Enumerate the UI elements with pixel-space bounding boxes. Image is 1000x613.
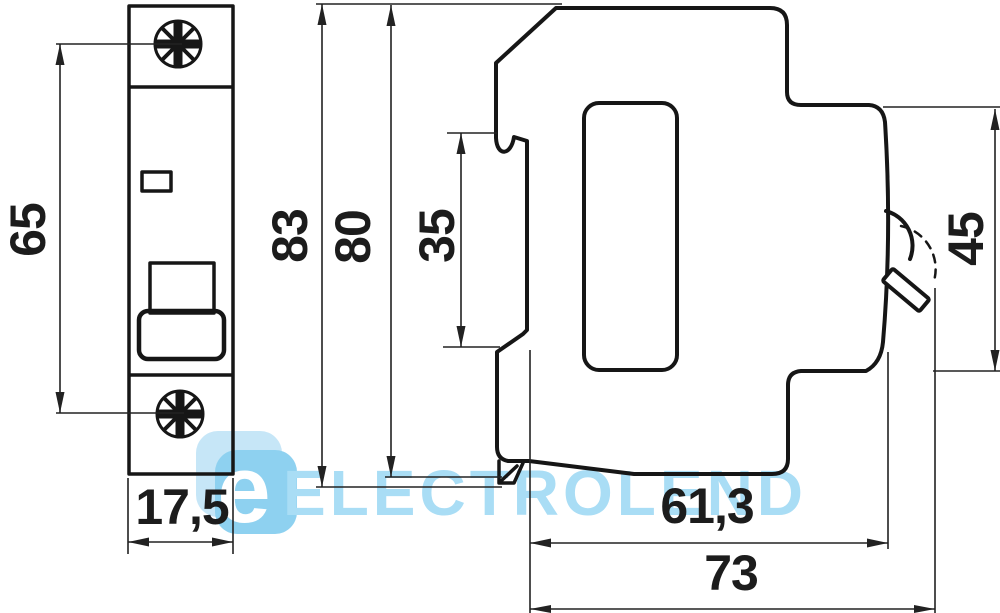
screenshot-root: e ELECTROLEND — [0, 0, 1000, 613]
din-clip-foot — [499, 461, 523, 483]
dim-label-overall-height: 83 — [265, 209, 315, 263]
toggle-lever-side — [882, 268, 929, 311]
dim-label-body-height: 80 — [328, 210, 378, 264]
side-body-outline — [496, 8, 888, 474]
dim-label-din-recess: 35 — [412, 209, 462, 263]
dim-label-screw-spacing: 65 — [3, 203, 53, 257]
dim-label-front-depth: 45 — [941, 212, 991, 266]
dim-label-front-width: 17,5 — [135, 482, 228, 532]
toggle-handle-front — [139, 311, 224, 359]
screw-bottom-icon — [157, 391, 203, 437]
side-view — [496, 8, 936, 483]
din-clip-inner-line — [503, 337, 519, 348]
side-label-recess — [584, 103, 677, 370]
dim-label-body-depth: 61,3 — [660, 481, 753, 531]
dim-label-overall-depth: 73 — [704, 548, 758, 598]
toggle-lever-front — [150, 263, 214, 313]
front-view — [129, 6, 233, 474]
toggle-travel-dashed-arc — [901, 226, 936, 284]
indicator-window — [142, 172, 171, 191]
